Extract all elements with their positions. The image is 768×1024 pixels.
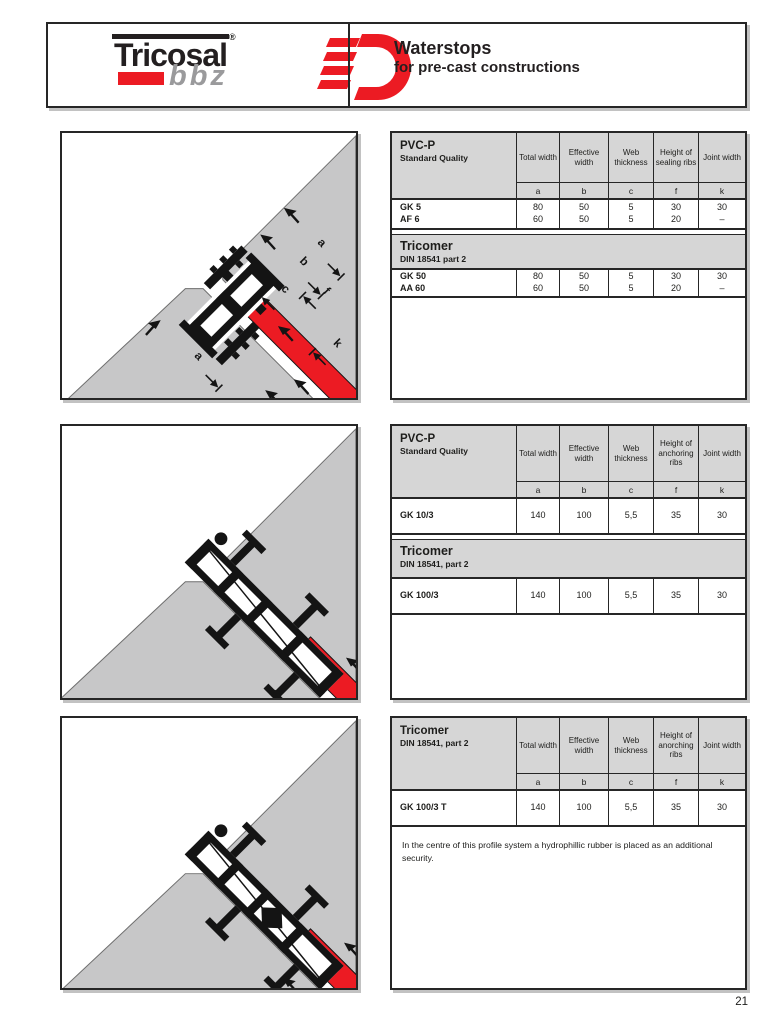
cell-value: 140: [516, 579, 559, 615]
cell-value: 30 20: [653, 200, 698, 230]
row-label: GK 10/3: [392, 499, 516, 535]
column-letter: b: [559, 481, 608, 499]
section-subtitle: DIN 18541 part 2: [400, 254, 745, 266]
table-note: In the centre of this profile system a h…: [392, 827, 745, 988]
column-header: Total width: [516, 718, 559, 773]
section-title: Tricomer: [400, 240, 745, 254]
spec-table-pvcp-gk10-3: PVC-P Standard Quality Total width Effec…: [390, 424, 747, 700]
column-letter: c: [608, 182, 653, 200]
cell-value: 50 50: [559, 270, 608, 298]
table-subtitle: Standard Quality: [400, 153, 510, 164]
table-empty-area: [392, 298, 745, 398]
column-letter: a: [516, 182, 559, 200]
joint-diagram-1-drawing: a b f c k a: [62, 133, 356, 398]
cell-value: 100: [559, 579, 608, 615]
cell-value: 35: [653, 579, 698, 615]
table-title: PVC-P: [400, 140, 510, 153]
column-header: Joint width: [698, 133, 745, 182]
joint-diagram-2: [60, 424, 358, 700]
logo-bbz-text: bbz: [169, 65, 228, 88]
table-subtitle: Standard Quality: [400, 446, 510, 457]
catalog-page: Tricosal ® bbz Waterstops for pre-cast c…: [0, 0, 768, 1024]
table-title: PVC-P: [400, 433, 510, 446]
cell-value: 5,5: [608, 579, 653, 615]
section-title: Tricomer: [400, 545, 745, 559]
spec-table-tricomer-gk100-3t: Tricomer DIN 18541, part 2 Total width E…: [390, 716, 747, 990]
column-header: Height of anorching ribs: [653, 718, 698, 773]
cell-value: 35: [653, 791, 698, 827]
cell-value: 100: [559, 499, 608, 535]
column-header: Joint width: [698, 426, 745, 481]
column-letter: k: [698, 773, 745, 791]
column-header: Web thickness: [608, 133, 653, 182]
cell-value: 30 20: [653, 270, 698, 298]
column-letter: k: [698, 481, 745, 499]
cell-value: 30: [698, 499, 745, 535]
column-header: Web thickness: [608, 718, 653, 773]
column-header: Height of sealing ribs: [653, 133, 698, 182]
column-header: Effective width: [559, 133, 608, 182]
row-label: GK 50 AA 60: [392, 270, 516, 298]
section-subtitle: DIN 18541, part 2: [400, 559, 745, 571]
page-subtitle: for pre-cast constructions: [394, 59, 746, 78]
header-title-block: Waterstops for pre-cast constructions: [348, 24, 746, 106]
cell-value: 30 –: [698, 270, 745, 298]
registered-mark: ®: [229, 32, 236, 42]
column-header: Effective width: [559, 426, 608, 481]
cell-value: 80 60: [516, 270, 559, 298]
row-label: GK 5 AF 6: [392, 200, 516, 230]
spec-table-pvcp-gk5: PVC-P Standard Quality Total width Effec…: [390, 131, 747, 400]
cell-value: 50 50: [559, 200, 608, 230]
column-header: Total width: [516, 426, 559, 481]
column-header: Total width: [516, 133, 559, 182]
page-header: Tricosal ® bbz Waterstops for pre-cast c…: [46, 22, 747, 108]
page-title: Waterstops: [394, 38, 746, 59]
table-head: PVC-P Standard Quality: [392, 426, 516, 499]
tricosal-logo: Tricosal ® bbz: [112, 34, 236, 88]
column-header: Joint width: [698, 718, 745, 773]
column-letter: f: [653, 481, 698, 499]
logo-red-bar: [118, 72, 164, 85]
joint-diagram-2-drawing: [62, 426, 356, 698]
table-title: Tricomer: [400, 725, 510, 738]
column-letter: a: [516, 481, 559, 499]
cell-value: 5 5: [608, 270, 653, 298]
column-letter: c: [608, 773, 653, 791]
table-head: Tricomer DIN 18541, part 2: [392, 718, 516, 791]
table-subtitle: DIN 18541, part 2: [400, 738, 510, 749]
row-label: GK 100/3: [392, 579, 516, 615]
column-letter: f: [653, 182, 698, 200]
cell-value: 30: [698, 791, 745, 827]
cell-value: 100: [559, 791, 608, 827]
cell-value: 35: [653, 499, 698, 535]
table-empty-area: [392, 615, 745, 698]
cell-value: 80 60: [516, 200, 559, 230]
joint-diagram-1: a b f c k a: [60, 131, 358, 400]
cell-value: 30 –: [698, 200, 745, 230]
column-letter: c: [608, 481, 653, 499]
cell-value: 30: [698, 579, 745, 615]
cell-value: 140: [516, 499, 559, 535]
column-letter: k: [698, 182, 745, 200]
column-header: Web thickness: [608, 426, 653, 481]
cell-value: 5,5: [608, 791, 653, 827]
column-letter: b: [559, 773, 608, 791]
joint-diagram-3-drawing: [62, 718, 356, 988]
column-letter: b: [559, 182, 608, 200]
cell-value: 5,5: [608, 499, 653, 535]
cell-value: 5 5: [608, 200, 653, 230]
table-head: PVC-P Standard Quality: [392, 133, 516, 200]
column-letter: a: [516, 773, 559, 791]
column-header: Effective width: [559, 718, 608, 773]
column-letter: f: [653, 773, 698, 791]
section-band: Tricomer DIN 18541, part 2: [392, 539, 745, 579]
column-header: Height of anchoring ribs: [653, 426, 698, 481]
cell-value: 140: [516, 791, 559, 827]
page-number: 21: [716, 996, 748, 1008]
joint-diagram-3: [60, 716, 358, 990]
section-band: Tricomer DIN 18541 part 2: [392, 234, 745, 270]
row-label: GK 100/3 T: [392, 791, 516, 827]
